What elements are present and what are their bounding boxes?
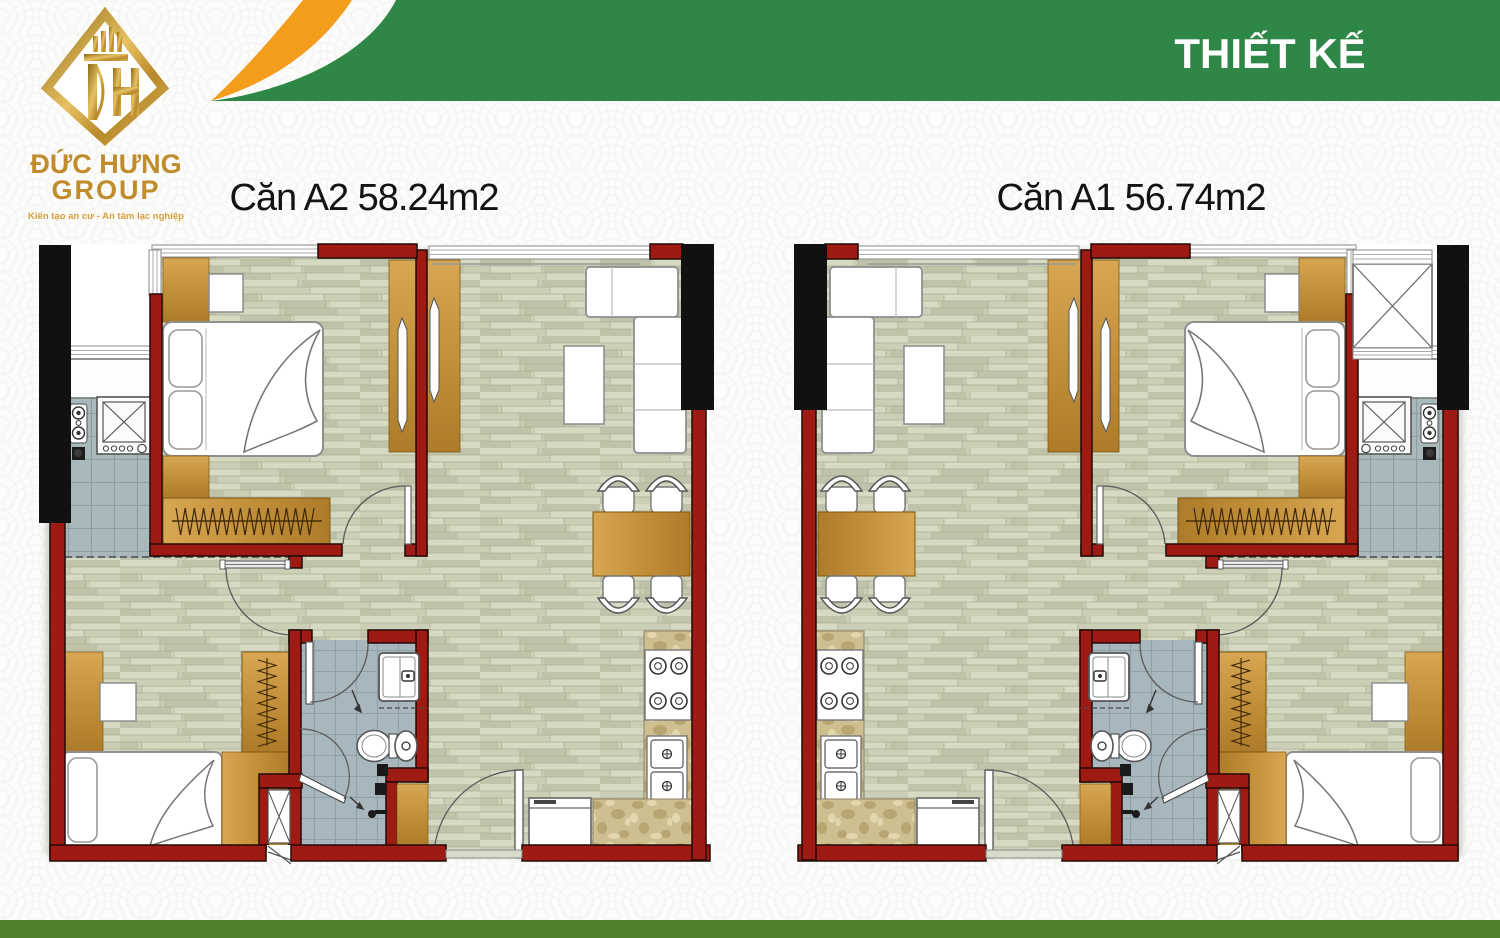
svg-text:Căn A1 56.74m2: Căn A1 56.74m2 [996, 177, 1265, 219]
svg-text:Kiến tạo an cư - An tâm lạc ng: Kiến tạo an cư - An tâm lạc nghiệp [28, 211, 184, 222]
svg-text:GROUP: GROUP [51, 175, 160, 205]
svg-text:THIẾT KẾ: THIẾT KẾ [1174, 30, 1365, 77]
svg-text:Căn A2 58.24m2: Căn A2 58.24m2 [229, 177, 498, 219]
